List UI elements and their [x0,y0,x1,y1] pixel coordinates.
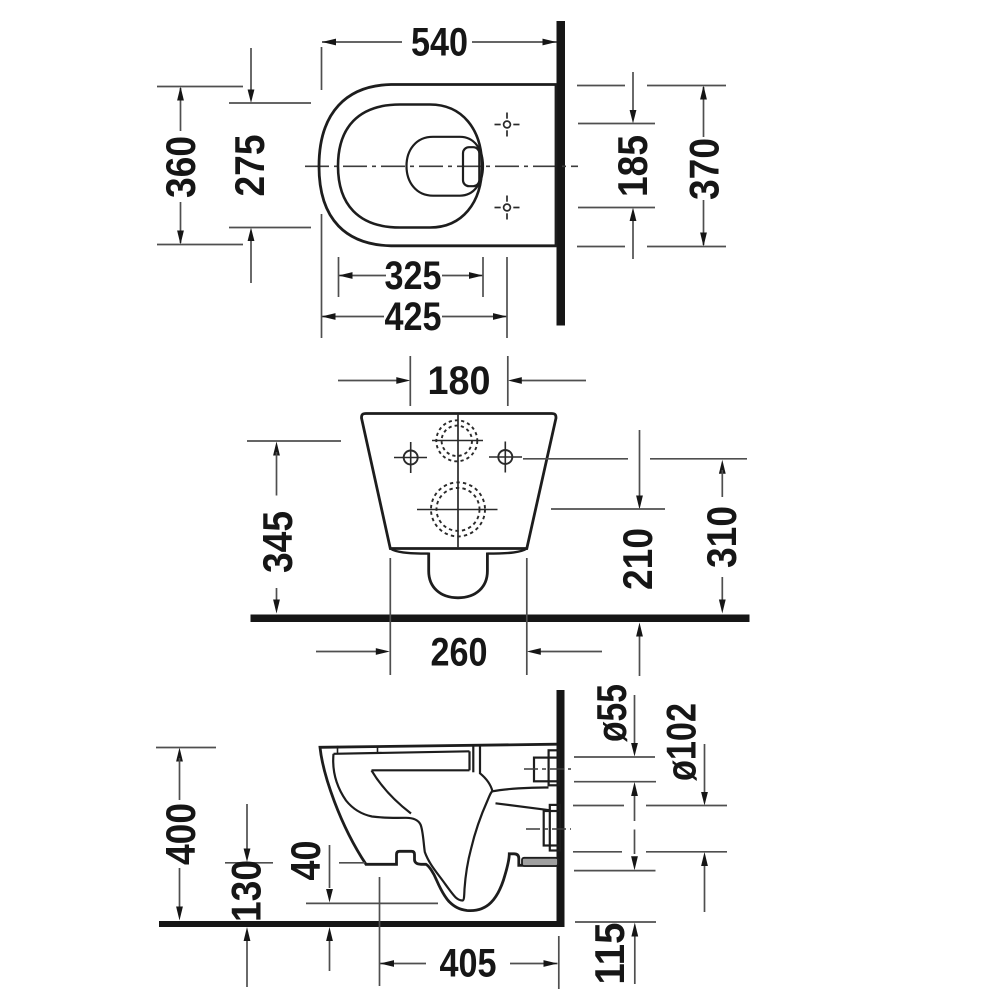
svg-text:260: 260 [431,631,488,675]
svg-text:370: 370 [681,138,728,200]
svg-text:ø55: ø55 [588,684,635,742]
svg-text:540: 540 [411,21,468,65]
svg-text:400: 400 [157,803,204,865]
svg-text:40: 40 [282,841,329,881]
svg-text:425: 425 [385,295,442,339]
svg-text:405: 405 [440,942,497,986]
svg-text:360: 360 [157,136,204,198]
svg-text:275: 275 [226,135,273,197]
svg-text:185: 185 [609,135,656,197]
svg-text:310: 310 [698,506,745,568]
svg-text:ø102: ø102 [658,703,705,781]
svg-text:210: 210 [614,528,661,590]
svg-text:180: 180 [428,359,491,403]
svg-text:130: 130 [223,860,270,922]
svg-text:325: 325 [385,254,442,298]
svg-text:345: 345 [254,511,301,573]
svg-text:115: 115 [586,923,633,985]
